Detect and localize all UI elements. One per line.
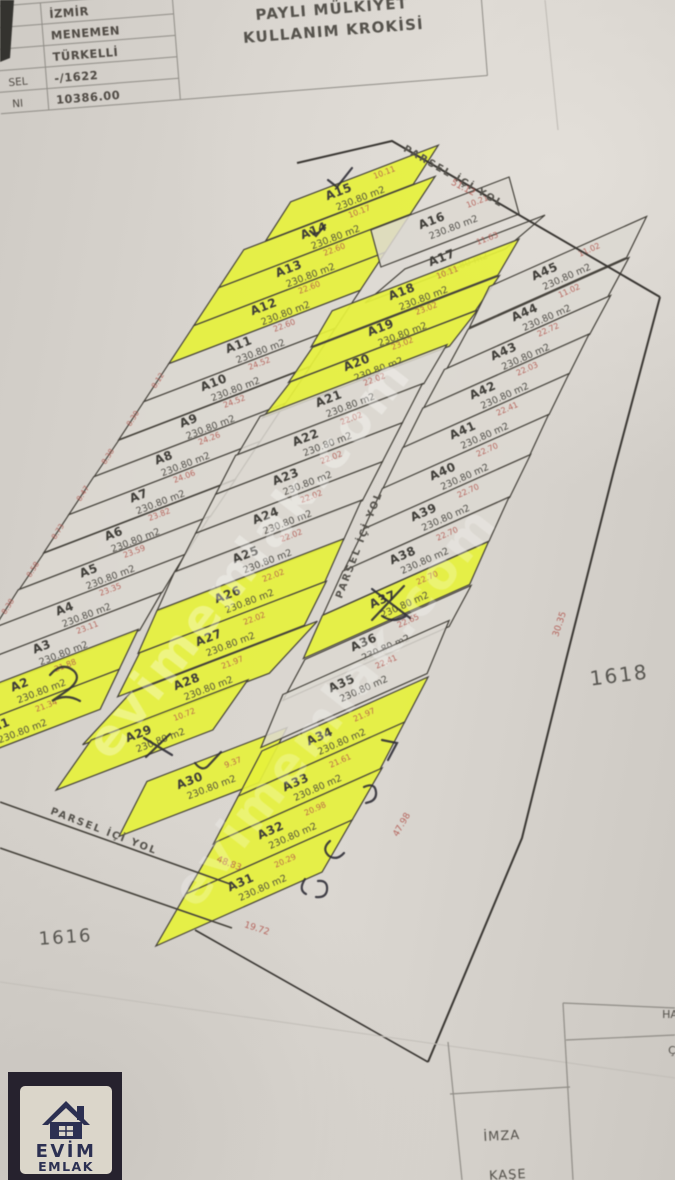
- scanned-cadastral-sketch: A15230.80 m210.11A14230.80 m210.17A13230…: [0, 0, 675, 1180]
- handwritten-mark: [302, 879, 327, 897]
- block-number: 1618: [588, 660, 649, 691]
- table-fragment: HA: [662, 1008, 675, 1021]
- stamp-table: İMZAKAŞEHAÇ: [448, 1003, 675, 1180]
- header-table: İZMİRMENEMENTÜRKELLİ-/162210386.00SELNIP…: [0, 0, 487, 114]
- map-layer: A15230.80 m210.11A14230.80 m210.17A13230…: [0, 0, 675, 1180]
- road-dimension: 19.72: [243, 920, 271, 937]
- scan-edge: [0, 0, 14, 62]
- header-row-label: NI: [12, 98, 24, 111]
- block-number: 1616: [38, 925, 93, 950]
- header-value: 10386.00: [55, 88, 120, 107]
- paper-crease: [0, 982, 675, 1078]
- signature-label: İMZA: [483, 1127, 521, 1145]
- site-boundary-south: [195, 930, 428, 1062]
- cadastral-map: A15230.80 m210.11A14230.80 m210.17A13230…: [0, 0, 675, 1180]
- header-value: MENEMEN: [50, 23, 120, 42]
- logo-text-line2: EMLAK: [38, 1159, 94, 1174]
- road-dimension: 30.35: [551, 611, 568, 639]
- header-row-label: SEL: [8, 76, 28, 89]
- header-value: TÜRKELLİ: [52, 44, 119, 64]
- road-dimension: 47.98: [391, 811, 413, 839]
- paper-crease: [545, 0, 558, 130]
- table-fragment: Ç: [668, 1044, 675, 1057]
- header-value: İZMİR: [49, 3, 90, 21]
- header-value: -/1622: [54, 68, 99, 85]
- stamp-label: KAŞE: [489, 1167, 527, 1180]
- agency-logo: EVİMEMLAK: [8, 1072, 122, 1180]
